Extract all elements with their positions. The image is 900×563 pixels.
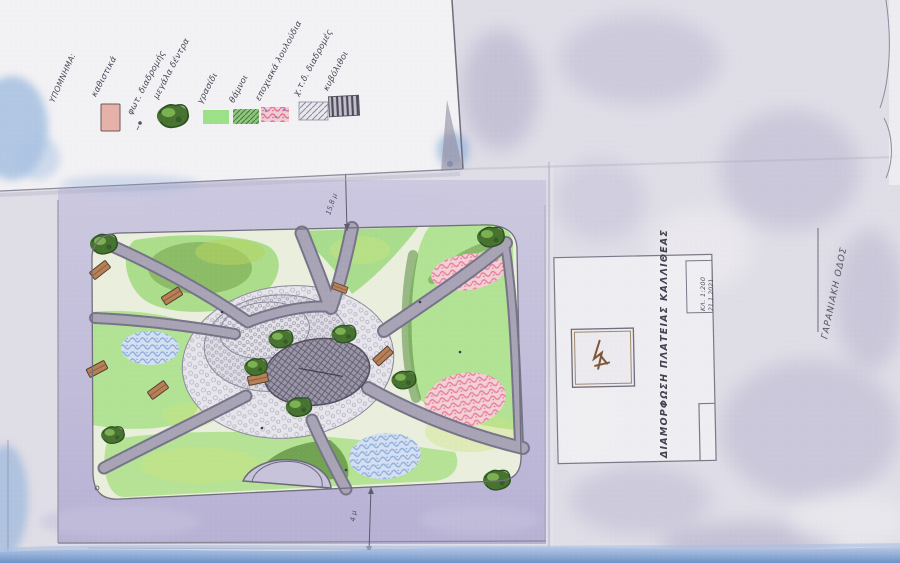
date-value: 21.1.2021 — [709, 279, 715, 311]
photo-of-garden-plan: ΥΠΟΜΝΗΜΑ: καθιστικά φωτ. διαδρομής μεγάλ… — [0, 0, 900, 563]
dimension-bottom-label: 4 μ — [350, 510, 358, 522]
scale-value: ΚΛ. 1:200 — [700, 277, 707, 311]
grain-overlay — [0, 0, 900, 563]
plan-drawing — [0, 0, 900, 563]
drawing-title: ΔΙΑΜΟΡΦΩΣΗ ΠΛΑΤΕΙΑΣ ΚΑΛΛΙΘΕΑΣ — [660, 229, 670, 458]
